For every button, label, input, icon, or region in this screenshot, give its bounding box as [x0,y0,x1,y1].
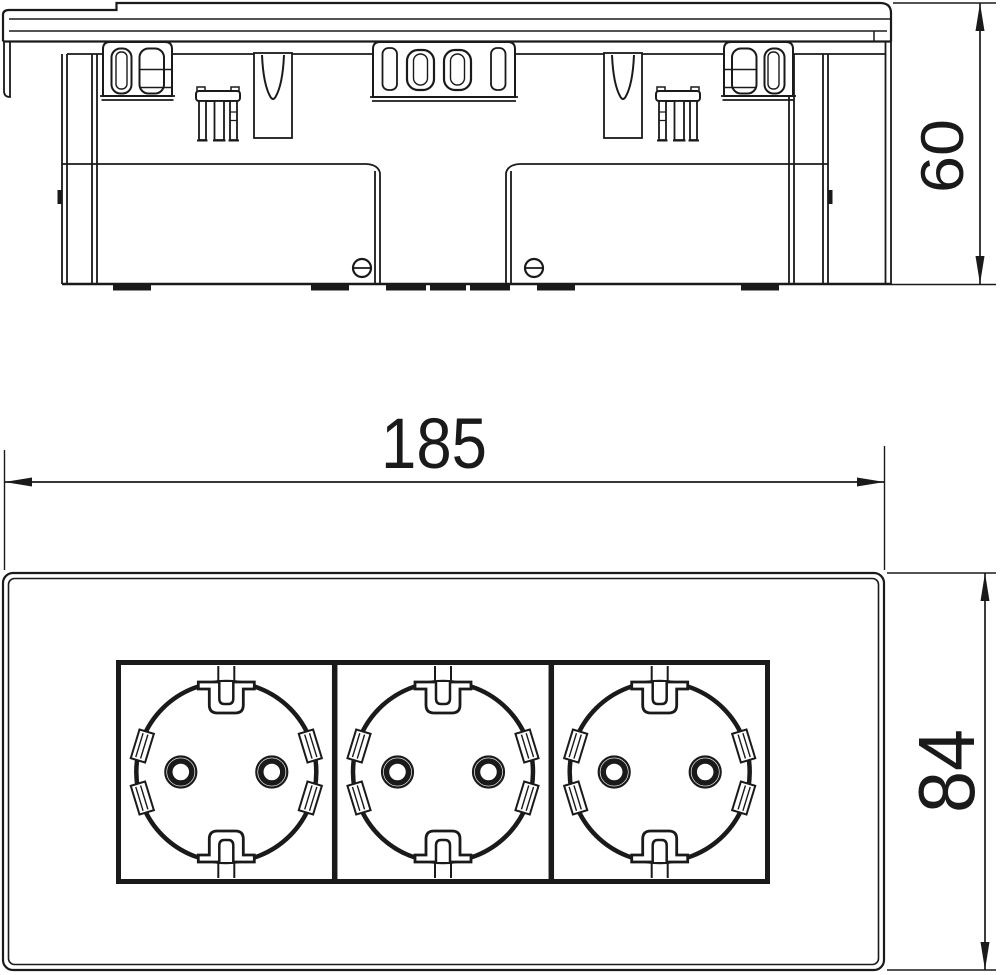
side-tick-right [828,190,833,204]
dimension-label-height: 84 [902,729,991,813]
dimension-label-width: 185 [381,405,487,484]
t-latch-right [656,87,700,141]
screw-right [525,259,543,277]
snap-latch-center [370,42,518,101]
right-housing-box [506,164,828,284]
spring-pin-right [604,53,642,138]
socket-module-1 [131,666,322,878]
screw-left [353,259,371,277]
cover-plate-inner-lines [9,19,891,42]
snap-latch-left [100,42,175,100]
left-housing-box [62,164,380,284]
t-latch-left [196,87,240,141]
socket-module-3 [564,666,755,878]
dimension-depth-60: 60 [891,3,996,285]
front-view [3,573,884,970]
cover-plate-outline [3,3,891,42]
right-lip [886,42,892,285]
side-tick-left [58,190,63,204]
snap-latch-right [721,42,796,100]
technical-drawing-svg: 60 [0,0,1000,975]
spring-pin-left [254,53,292,138]
left-lip [4,42,10,98]
socket-module-2 [347,666,538,878]
side-view [3,3,891,291]
mounting-feet [113,285,779,291]
technical-drawing-page: 60 [0,0,1000,975]
dimension-height-84: 84 [887,573,996,970]
dimension-width-185: 185 [5,405,885,570]
dimension-label-depth: 60 [909,119,976,193]
